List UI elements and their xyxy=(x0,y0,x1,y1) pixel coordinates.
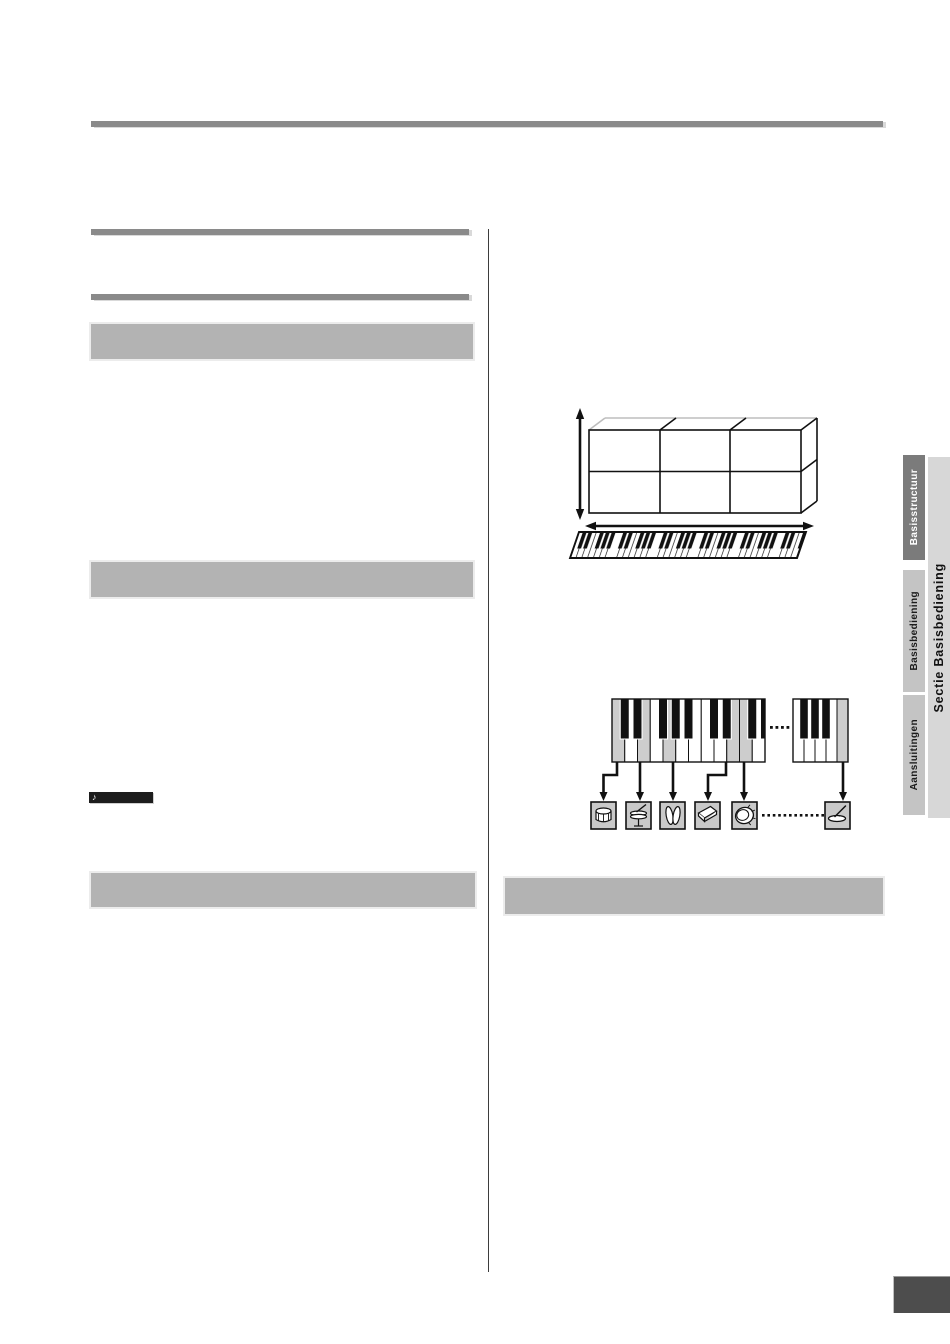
vertical-double-arrow xyxy=(576,408,584,520)
tab-basisstructuur-label: Basisstructuur xyxy=(909,469,920,545)
left-section-rule-1 xyxy=(91,229,469,235)
tab-basisbediening-label: Basisbediening xyxy=(909,591,920,671)
ellipsis-dots xyxy=(770,726,789,729)
tab-basisbediening: Basisbediening xyxy=(903,570,925,692)
tab-sectie-basisbediening-label: Sectie Basisbediening xyxy=(932,563,946,712)
note-badge: ♪ xyxy=(89,792,153,803)
heading-bar-left-3 xyxy=(91,873,475,907)
keyboard-left xyxy=(612,699,770,762)
left-section-rule-2 xyxy=(91,294,469,300)
tab-basisstructuur: Basisstructuur xyxy=(903,455,925,560)
voice-structure-diagram xyxy=(540,395,870,570)
top-rule xyxy=(91,121,883,127)
tab-aansluitingen-label: Aansluitingen xyxy=(909,719,920,790)
cowbell-icon xyxy=(695,802,720,829)
drum-icon-boxes xyxy=(591,802,850,829)
heading-bar-left-2 xyxy=(91,562,473,597)
hi-hat-icon xyxy=(626,802,651,829)
tambourine-icon xyxy=(732,802,759,829)
voice-element-grid xyxy=(589,418,817,513)
column-divider xyxy=(488,229,489,1272)
snare-drum-icon xyxy=(591,802,616,829)
keyboard-strip xyxy=(570,532,806,558)
tab-aansluitingen: Aansluitingen xyxy=(903,695,925,815)
dotted-line xyxy=(762,814,824,817)
manual-page: ♪ xyxy=(0,0,950,1344)
heading-bar-left-1 xyxy=(91,324,473,359)
mapping-arrowheads xyxy=(600,792,848,801)
horizontal-double-arrow xyxy=(585,522,814,530)
tab-sectie-basisbediening: Sectie Basisbediening xyxy=(928,457,950,818)
page-number-box xyxy=(893,1276,950,1313)
hand-cymbals-icon xyxy=(660,802,685,829)
mapping-arrows xyxy=(604,762,844,793)
cymbal-icon xyxy=(825,802,850,829)
keyboard-right xyxy=(793,699,848,762)
heading-bar-right xyxy=(505,878,883,914)
drum-kit-diagram xyxy=(540,680,880,840)
eighth-note-icon: ♪ xyxy=(92,792,97,802)
